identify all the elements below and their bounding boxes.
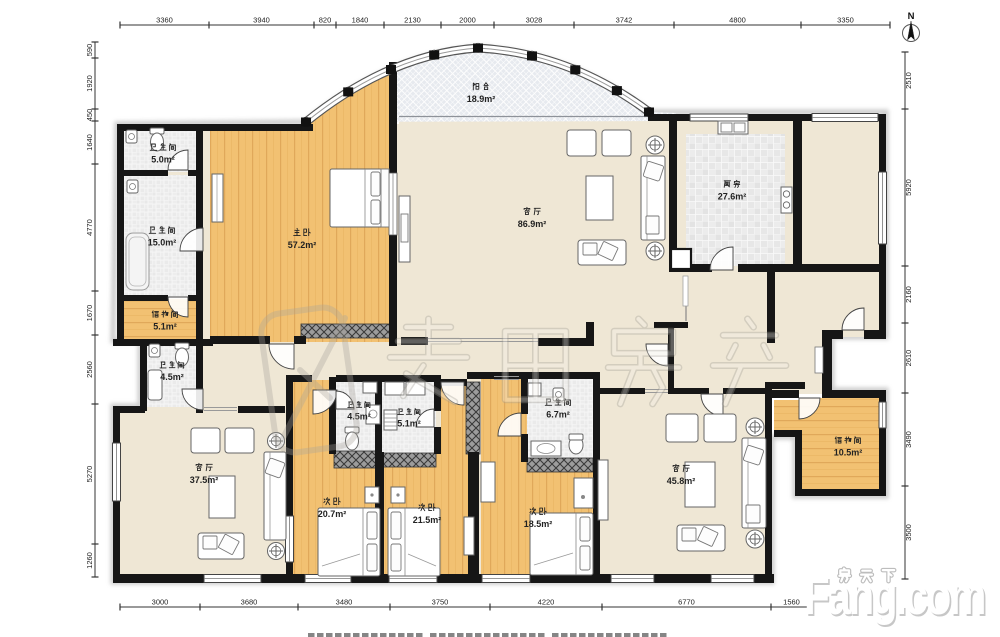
svg-text:21.5m²: 21.5m² <box>413 515 442 525</box>
svg-text:Fang.com: Fang.com <box>804 566 985 626</box>
svg-text:6.7m²: 6.7m² <box>546 410 570 420</box>
svg-text:6770: 6770 <box>678 598 695 607</box>
svg-text:15.0m²: 15.0m² <box>148 238 177 248</box>
svg-text:1670: 1670 <box>85 305 94 322</box>
svg-text:5270: 5270 <box>85 466 94 483</box>
svg-text:37.5m²: 37.5m² <box>190 475 219 485</box>
svg-text:3500: 3500 <box>904 524 913 541</box>
svg-text:3680: 3680 <box>241 598 258 607</box>
svg-text:1840: 1840 <box>352 16 369 25</box>
svg-text:2160: 2160 <box>904 286 913 303</box>
svg-text:4770: 4770 <box>85 219 94 236</box>
svg-text:3750: 3750 <box>432 598 449 607</box>
svg-text:5.1m²: 5.1m² <box>153 322 177 332</box>
svg-text:590: 590 <box>85 44 94 57</box>
svg-text:4.5m²: 4.5m² <box>160 372 184 382</box>
svg-text:4220: 4220 <box>538 598 555 607</box>
svg-text:3480: 3480 <box>336 598 353 607</box>
svg-text:450: 450 <box>85 109 94 122</box>
svg-text:45.8m²: 45.8m² <box>667 476 696 486</box>
svg-text:10.5m²: 10.5m² <box>834 448 863 458</box>
svg-text:5920: 5920 <box>904 179 913 196</box>
svg-text:2130: 2130 <box>404 16 421 25</box>
svg-text:4800: 4800 <box>729 16 746 25</box>
svg-text:3000: 3000 <box>152 598 169 607</box>
svg-text:1560: 1560 <box>783 598 800 607</box>
svg-text:57.2m²: 57.2m² <box>288 240 317 250</box>
svg-text:20.7m²: 20.7m² <box>318 509 347 519</box>
svg-text:3490: 3490 <box>904 431 913 448</box>
svg-text:3028: 3028 <box>526 16 543 25</box>
svg-text:2000: 2000 <box>459 16 476 25</box>
svg-text:5.0m²: 5.0m² <box>151 155 175 165</box>
svg-text:1920: 1920 <box>85 75 94 92</box>
svg-text:5.1m²: 5.1m² <box>397 419 421 429</box>
svg-text:2560: 2560 <box>85 361 94 378</box>
svg-text:27.6m²: 27.6m² <box>718 192 747 202</box>
svg-text:86.9m²: 86.9m² <box>518 219 547 229</box>
svg-text:3940: 3940 <box>253 16 270 25</box>
svg-text:18.9m²: 18.9m² <box>467 94 496 104</box>
svg-text:1640: 1640 <box>85 134 94 151</box>
svg-text:820: 820 <box>319 16 332 25</box>
svg-text:3350: 3350 <box>837 16 854 25</box>
svg-text:N: N <box>908 11 915 22</box>
svg-text:1260: 1260 <box>85 552 94 569</box>
svg-text:3742: 3742 <box>616 16 633 25</box>
svg-text:18.5m²: 18.5m² <box>524 519 553 529</box>
svg-text:2510: 2510 <box>904 72 913 89</box>
svg-text:3360: 3360 <box>156 16 173 25</box>
svg-text:2610: 2610 <box>904 350 913 367</box>
